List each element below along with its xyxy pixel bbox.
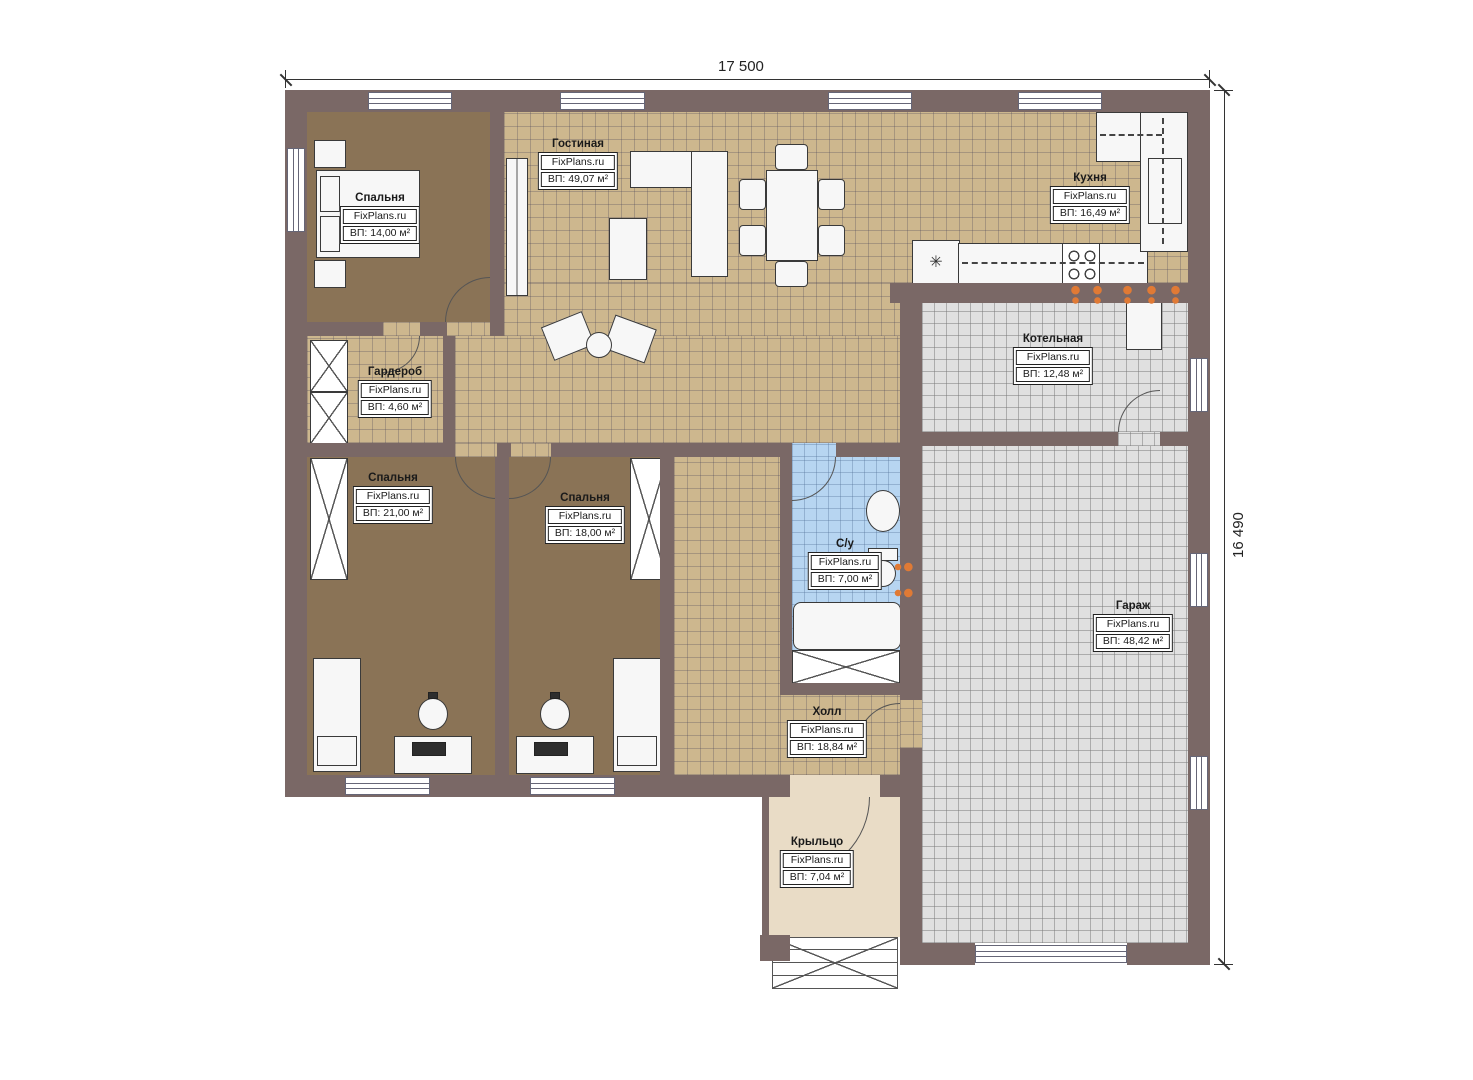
- wall-boiler-garage-2: [1160, 432, 1188, 446]
- brand-label: FixPlans.ru: [811, 555, 879, 570]
- room-name: Гостиная: [538, 138, 618, 150]
- room-info-box: FixPlans.ru ВП: 4,60 м²: [358, 380, 432, 418]
- side-table: [586, 332, 612, 358]
- room-name: Крыльцо: [780, 836, 854, 848]
- pillow: [320, 216, 340, 252]
- window-icon: [560, 92, 645, 110]
- window-icon: [1190, 553, 1208, 607]
- desk-chair: [418, 698, 448, 730]
- wall-wardrobe-right: [443, 336, 455, 443]
- dim-tick: [1204, 74, 1217, 87]
- room-info-box: FixPlans.ru ВП: 21,00 м²: [353, 486, 433, 524]
- brand-label: FixPlans.ru: [1096, 617, 1170, 632]
- counter-edge: [1162, 118, 1164, 244]
- room-label-bedroom-3: Спальня FixPlans.ru ВП: 18,00 м²: [545, 492, 625, 544]
- bathtub: [793, 602, 901, 650]
- radiator-icon: [1122, 284, 1133, 306]
- room-label-boiler: Котельная FixPlans.ru ВП: 12,48 м²: [1013, 333, 1093, 385]
- corridor-floor: [455, 336, 900, 443]
- window-icon: [287, 148, 305, 232]
- room-area: ВП: 7,04 м²: [783, 870, 851, 885]
- wall-right: [1188, 90, 1210, 965]
- room-label-wardrobe: Гардероб FixPlans.ru ВП: 4,60 м²: [358, 366, 432, 418]
- room-name: Спальня: [545, 492, 625, 504]
- brand-label: FixPlans.ru: [356, 489, 430, 504]
- brand-label: FixPlans.ru: [541, 155, 615, 170]
- closet: [310, 340, 348, 392]
- dining-table: [766, 170, 818, 261]
- threshold: [445, 322, 490, 336]
- chair: [775, 144, 808, 170]
- chair: [818, 225, 845, 256]
- dim-tick: [280, 74, 293, 87]
- window-icon: [345, 777, 430, 795]
- room-name: Спальня: [353, 472, 433, 484]
- wall-bedroom1-bottom-1: [307, 322, 383, 336]
- threshold: [900, 700, 922, 748]
- room-area: ВП: 18,00 м²: [548, 526, 622, 541]
- room-name: Спальня: [340, 192, 420, 204]
- chair-back: [550, 692, 560, 699]
- room-info-box: FixPlans.ru ВП: 49,07 м²: [538, 152, 618, 190]
- room-area: ВП: 21,00 м²: [356, 506, 430, 521]
- room-label-bathroom: С/у FixPlans.ru ВП: 7,00 м²: [808, 538, 882, 590]
- threshold: [1118, 432, 1160, 446]
- window-icon: [1190, 756, 1208, 810]
- room-info-box: FixPlans.ru ВП: 12,48 м²: [1013, 347, 1093, 385]
- window-icon: [1190, 358, 1208, 412]
- counter-edge: [1100, 134, 1162, 136]
- room-info-box: FixPlans.ru ВП: 48,42 м²: [1093, 614, 1173, 652]
- threshold: [792, 443, 836, 457]
- chair: [775, 261, 808, 287]
- room-area: ВП: 49,07 м²: [541, 172, 615, 187]
- room-area: ВП: 14,00 м²: [343, 226, 417, 241]
- wall-bathroom-bottom: [780, 683, 922, 695]
- threshold: [383, 322, 420, 336]
- room-info-box: FixPlans.ru ВП: 18,84 м²: [787, 720, 867, 758]
- wall-porch-left: [762, 797, 769, 937]
- wall-garage-left-upper: [900, 283, 922, 700]
- brand-label: FixPlans.ru: [1053, 189, 1127, 204]
- radiator-icon: [893, 562, 915, 573]
- wall-bathroom-left: [780, 457, 792, 695]
- entry-threshold: [790, 775, 880, 797]
- wall-porch-corner: [760, 935, 790, 961]
- wall-bedroom1-bottom-2: [420, 322, 447, 336]
- room-name: Котельная: [1013, 333, 1093, 345]
- room-info-box: FixPlans.ru ВП: 7,00 м²: [808, 552, 882, 590]
- brand-label: FixPlans.ru: [783, 853, 851, 868]
- radiator-icon: [1170, 284, 1181, 306]
- room-label-living: Гостиная FixPlans.ru ВП: 49,07 м²: [538, 138, 618, 190]
- nightstand: [314, 260, 346, 288]
- room-name: С/у: [808, 538, 882, 550]
- window-icon: [828, 92, 912, 110]
- closet: [310, 458, 348, 580]
- chair: [739, 179, 766, 210]
- room-name: Холл: [787, 706, 867, 718]
- wall-bedroom3-right: [660, 443, 674, 775]
- room-area: ВП: 12,48 м²: [1016, 367, 1090, 382]
- kitchen-sink-icon: [1148, 158, 1182, 224]
- kitchen-counter: [958, 243, 1148, 285]
- brand-label: FixPlans.ru: [361, 383, 429, 398]
- nightstand: [314, 140, 346, 168]
- sofa: [691, 151, 728, 277]
- bathroom-cabinet: [792, 650, 900, 684]
- wardrobe-cabinet: [506, 158, 528, 296]
- room-name: Кухня: [1050, 172, 1130, 184]
- wall-bedrooms-top-stub: [497, 443, 511, 457]
- radiator-icon: [893, 588, 915, 599]
- room-label-bedroom-1: Спальня FixPlans.ru ВП: 14,00 м²: [340, 192, 420, 244]
- wall-garage-bottom-2: [1127, 943, 1210, 965]
- threshold: [509, 443, 551, 457]
- desk-chair: [540, 698, 570, 730]
- brand-label: FixPlans.ru: [343, 209, 417, 224]
- wall-garage-left-lower: [900, 748, 922, 965]
- garage-gate: [975, 945, 1127, 963]
- room-area: ВП: 18,84 м²: [790, 740, 864, 755]
- pillow: [320, 176, 340, 212]
- closet: [310, 392, 348, 444]
- room-info-box: FixPlans.ru ВП: 14,00 м²: [340, 206, 420, 244]
- radiator-icon: [1146, 284, 1157, 306]
- fridge-icon: ✳: [912, 240, 960, 285]
- room-area: ВП: 7,00 м²: [811, 572, 879, 587]
- room-info-box: FixPlans.ru ВП: 18,00 м²: [545, 506, 625, 544]
- pillow: [317, 736, 357, 766]
- room-label-porch: Крыльцо FixPlans.ru ВП: 7,04 м²: [780, 836, 854, 888]
- radiator-icon: [1070, 284, 1081, 306]
- wall-bedrooms-top-1: [307, 443, 455, 457]
- room-name: Гараж: [1093, 600, 1173, 612]
- window-icon: [530, 777, 615, 795]
- room-label-kitchen: Кухня FixPlans.ru ВП: 16,49 м²: [1050, 172, 1130, 224]
- brand-label: FixPlans.ru: [548, 509, 622, 524]
- garage-floor: [922, 446, 1188, 943]
- stove-icon: [1062, 243, 1100, 285]
- window-icon: [368, 92, 452, 110]
- computer-icon: [412, 742, 446, 756]
- window-icon: [1018, 92, 1102, 110]
- chair: [739, 225, 766, 256]
- wall-boiler-garage-1: [922, 432, 1118, 446]
- wall-bedrooms-shared: [495, 457, 509, 775]
- threshold: [455, 443, 497, 457]
- porch-steps: [772, 937, 898, 989]
- dimension-width: 17 500: [718, 58, 764, 75]
- room-area: ВП: 16,49 м²: [1053, 206, 1127, 221]
- room-info-box: FixPlans.ru ВП: 7,04 м²: [780, 850, 854, 888]
- floor-plan-canvas: ✳ Спаль: [0, 0, 1473, 1080]
- brand-label: FixPlans.ru: [1016, 350, 1090, 365]
- dimension-height: 16 490: [1230, 512, 1247, 558]
- radiator-icon: [1092, 284, 1103, 306]
- room-info-box: FixPlans.ru ВП: 16,49 м²: [1050, 186, 1130, 224]
- wash-basin: [866, 490, 900, 532]
- room-label-bedroom-2: Спальня FixPlans.ru ВП: 21,00 м²: [353, 472, 433, 524]
- pillow: [617, 736, 657, 766]
- dimension-line-top: [285, 79, 1210, 80]
- wall-bedrooms-top-3: [836, 443, 900, 457]
- room-label-garage: Гараж FixPlans.ru ВП: 48,42 м²: [1093, 600, 1173, 652]
- coffee-table: [609, 218, 647, 280]
- dimension-line-right: [1224, 90, 1225, 965]
- counter-edge: [962, 262, 1144, 264]
- room-area: ВП: 4,60 м²: [361, 400, 429, 415]
- brand-label: FixPlans.ru: [790, 723, 864, 738]
- computer-icon: [534, 742, 568, 756]
- hall-floor-left: [674, 457, 780, 775]
- chair-back: [428, 692, 438, 699]
- chair: [818, 179, 845, 210]
- wall-bedroom1-right: [490, 110, 504, 336]
- fridge-glyph: ✳: [929, 254, 942, 271]
- room-area: ВП: 48,42 м²: [1096, 634, 1170, 649]
- room-name: Гардероб: [358, 366, 432, 378]
- room-label-hall: Холл FixPlans.ru ВП: 18,84 м²: [787, 706, 867, 758]
- wall-kitchen-boiler: [890, 283, 1188, 303]
